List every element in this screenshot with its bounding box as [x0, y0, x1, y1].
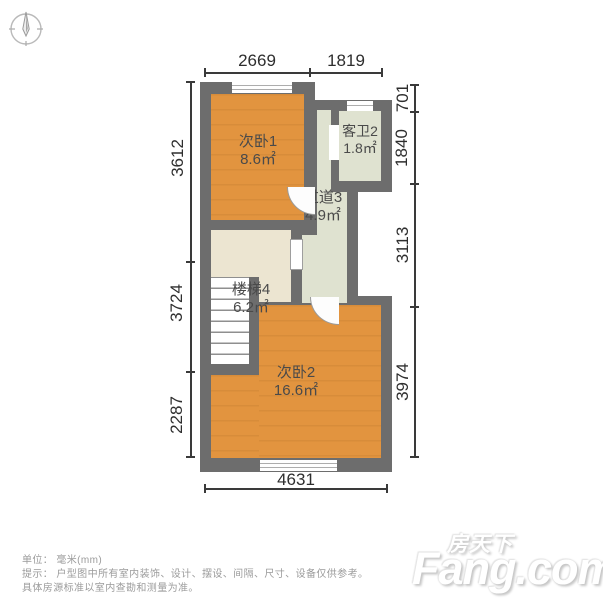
compass-icon — [6, 8, 46, 48]
floor-stairs-room — [211, 230, 291, 277]
dim-top-1: 2669 — [207, 51, 307, 71]
dim-right-2: 1840 — [392, 129, 412, 167]
dim-left-3: 2287 — [167, 396, 187, 434]
room-label-bedroom2: 次卧2 16.6㎡ — [240, 364, 352, 400]
floorplan-image: 次卧1 8.6㎡ 客卫2 1.8㎡ 过道3 4.9㎡ 楼梯4 6.2㎡ 次卧2 … — [0, 0, 603, 603]
tick — [204, 484, 206, 493]
tick — [410, 183, 419, 185]
dim-right-1: 701 — [393, 84, 413, 112]
window-bath2 — [347, 101, 373, 111]
room-label-stairs4: 楼梯4 6.2㎡ — [211, 281, 291, 317]
room-name: 客卫2 — [337, 123, 383, 140]
room-label-bath2: 客卫2 1.8㎡ — [337, 123, 383, 157]
dimline-right — [414, 85, 416, 458]
dim-bottom-1: 4631 — [246, 470, 346, 490]
room-name: 楼梯4 — [211, 281, 291, 299]
footer-disclaimer-1: 提示： 户型图中所有室内装饰、设计、摆设、间隔、尺寸、设备仅供参考。 — [22, 565, 368, 580]
room-name: 次卧2 — [240, 364, 352, 382]
dim-right-3: 3113 — [393, 227, 413, 264]
floor-hallway-lower — [302, 235, 347, 303]
room-area: 16.6㎡ — [240, 382, 352, 400]
tick — [186, 81, 195, 83]
tick — [204, 68, 206, 77]
dim-left-1: 3612 — [168, 139, 188, 177]
dim-right-4: 3974 — [393, 363, 413, 401]
tick — [186, 371, 195, 373]
dimline-left — [190, 82, 192, 458]
dimline-top — [205, 72, 383, 74]
tick — [386, 484, 388, 493]
fang-logo-en: Fang.com — [412, 543, 603, 595]
room-label-bedroom1: 次卧1 8.6㎡ — [212, 133, 304, 169]
room-name: 次卧1 — [212, 133, 304, 151]
tick — [186, 261, 195, 263]
door-stairs — [290, 239, 303, 270]
tick — [410, 456, 419, 458]
footer-disclaimer-2: 具体房源标准以室内查勘和测量为准。 — [22, 579, 199, 594]
footer-unit-line: 单位： 毫米(mm) — [22, 551, 102, 566]
room-area: 8.6㎡ — [212, 151, 304, 169]
room-area: 1.8㎡ — [337, 140, 383, 157]
tick — [186, 456, 195, 458]
tick — [410, 306, 419, 308]
dim-top-2: 1819 — [306, 51, 386, 71]
dim-left-2: 3724 — [167, 284, 187, 322]
room-area: 6.2㎡ — [211, 299, 291, 317]
window-bedroom1 — [232, 82, 292, 93]
